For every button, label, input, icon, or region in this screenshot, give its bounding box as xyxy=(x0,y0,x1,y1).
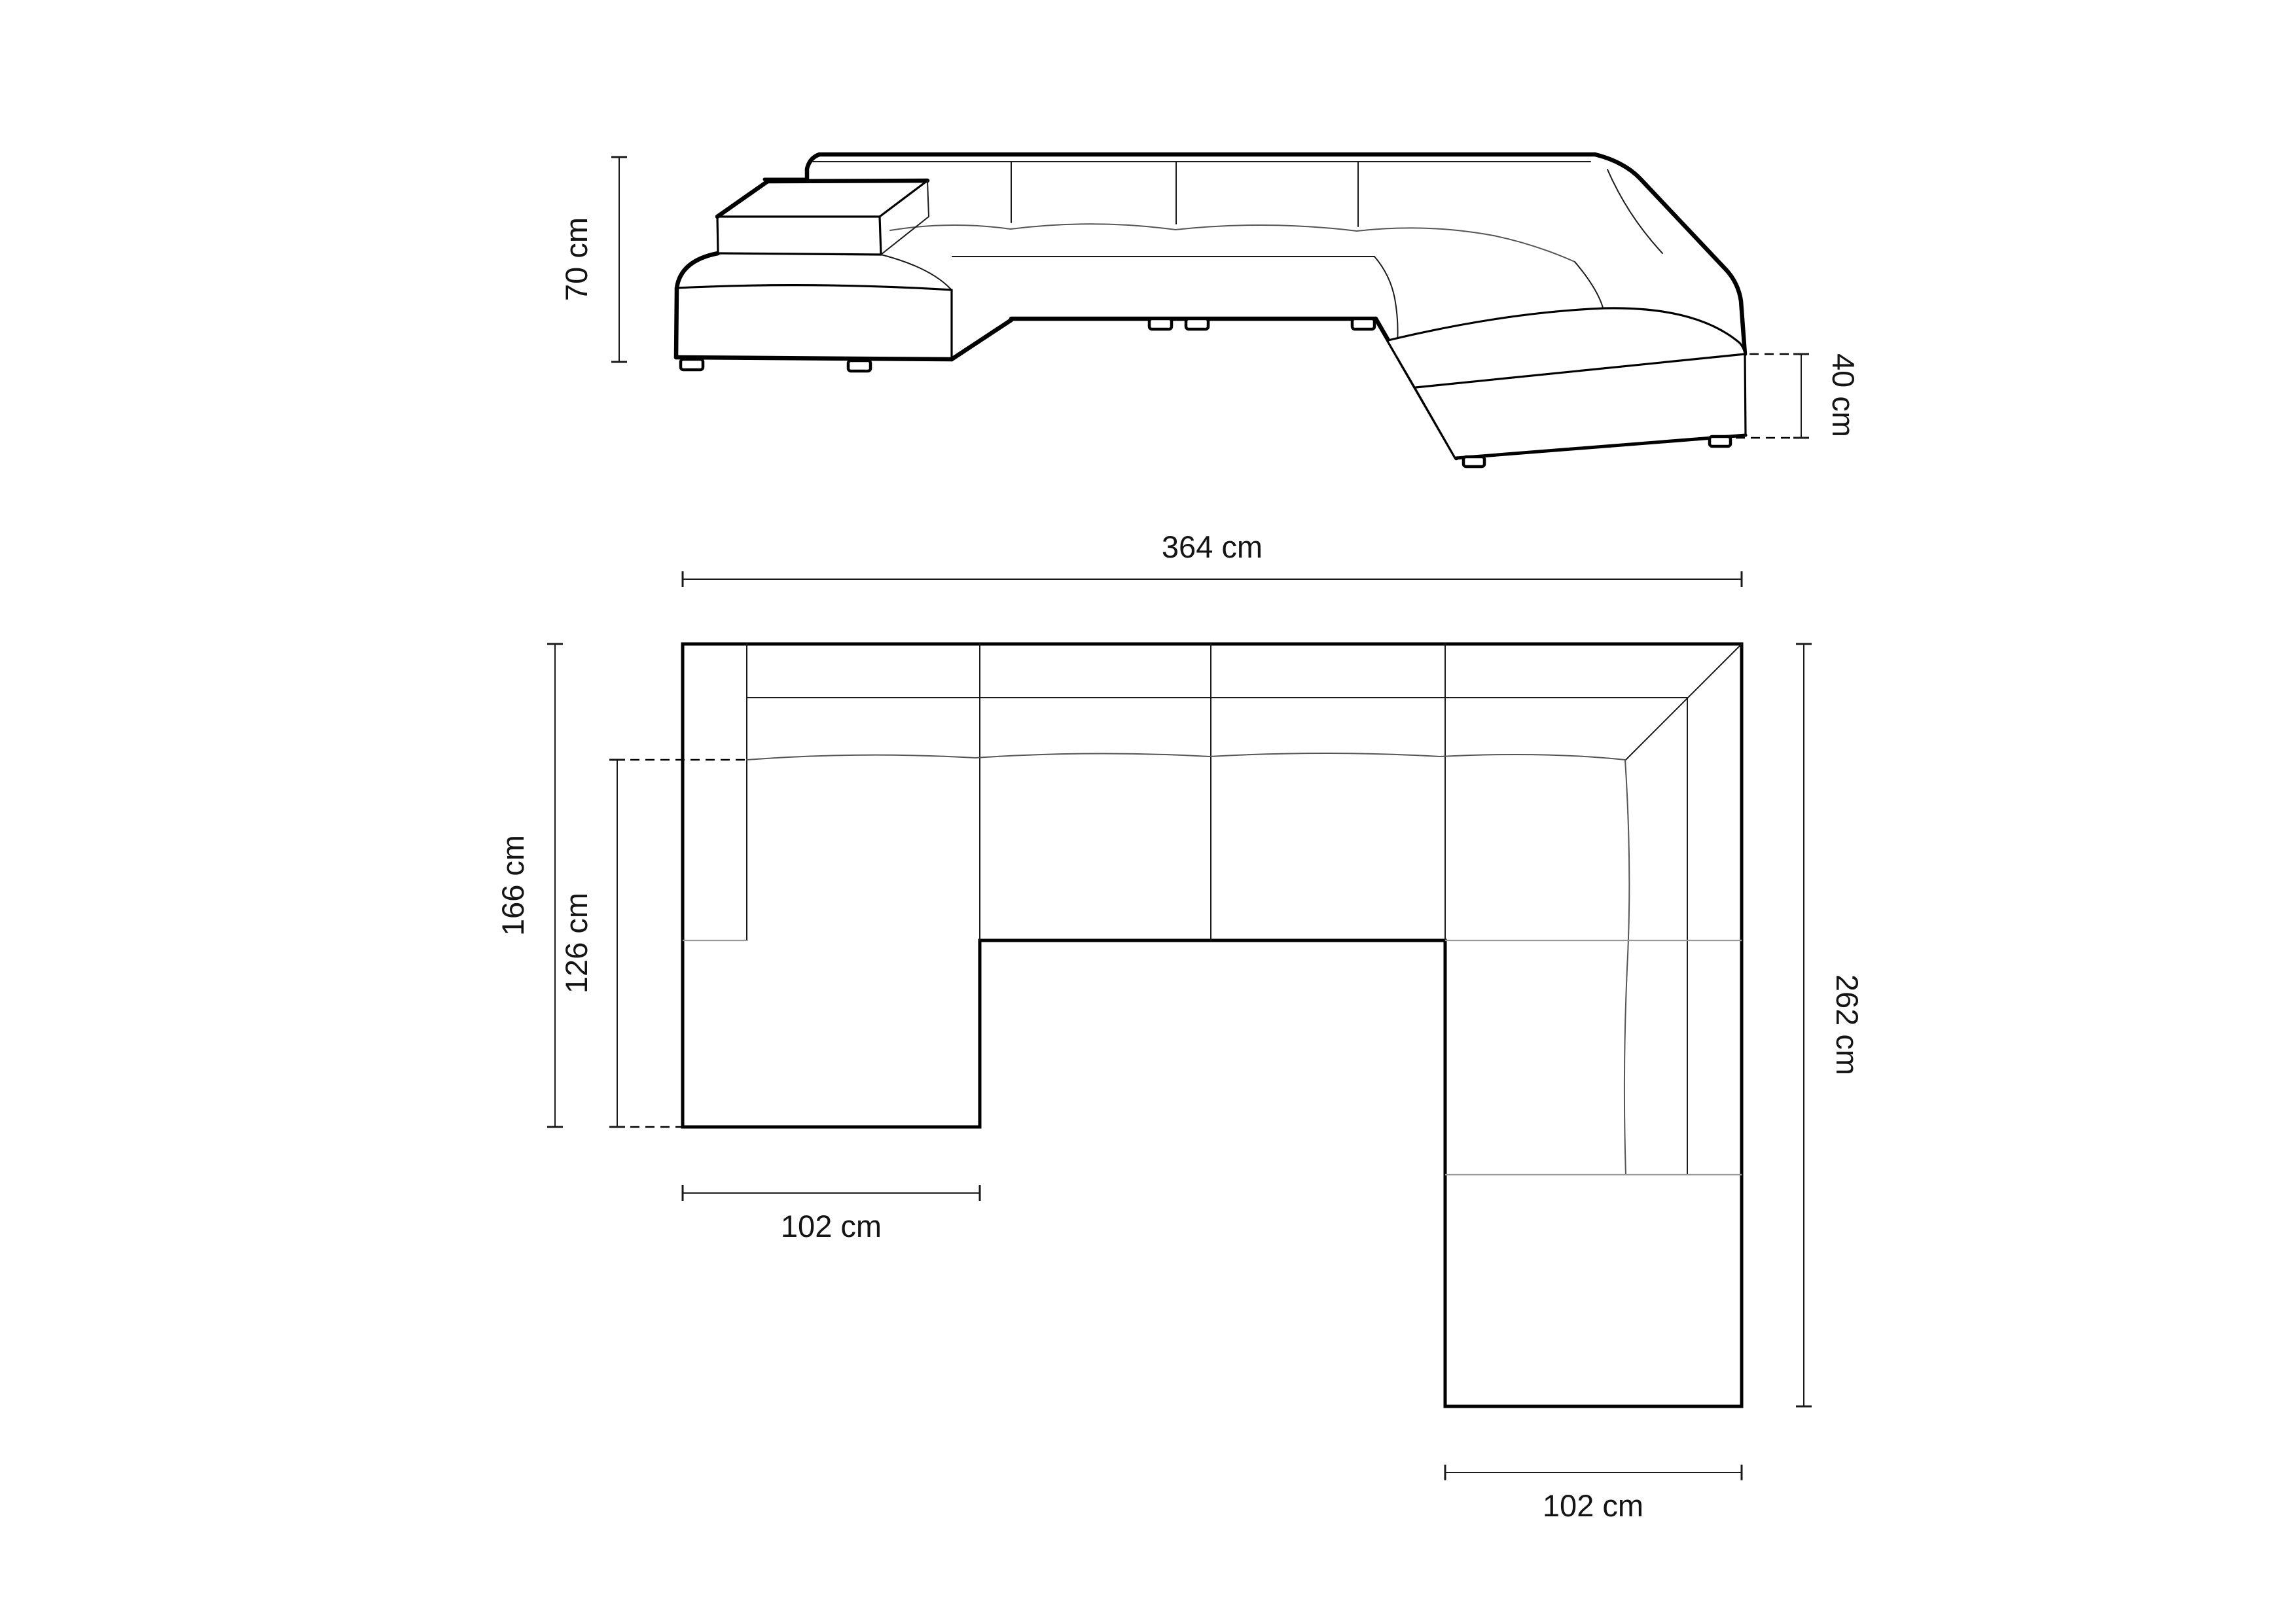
dim-left-chaise-inner: 126 cm xyxy=(559,760,625,1127)
sofa-right-corner-and-ottoman xyxy=(1374,154,1746,467)
dim-label-left-chaise-inner: 126 cm xyxy=(559,893,594,993)
ottoman-foot-left xyxy=(1463,457,1484,467)
dim-left-chaise-width: 102 cm xyxy=(683,1185,980,1243)
ottoman-foot-right xyxy=(1710,437,1731,446)
dim-label-plan-width: 364 cm xyxy=(1162,529,1263,564)
dim-label-left-chaise-width: 102 cm xyxy=(781,1209,882,1243)
dim-ottoman-height: 40 cm xyxy=(1736,353,1861,438)
dim-right-depth: 262 cm xyxy=(1796,644,1865,1406)
plan-outline xyxy=(683,644,1742,1406)
dim-label-right-depth: 262 cm xyxy=(1830,974,1865,1075)
dim-label-front-height: 70 cm xyxy=(559,217,594,301)
dim-label-left-depth: 166 cm xyxy=(495,835,530,936)
sofa-left-chaise xyxy=(676,253,1011,371)
sofa-dimension-diagram: 70 cm 40 cm xyxy=(0,0,2296,1623)
dim-front-height: 70 cm xyxy=(559,157,627,362)
dim-label-ottoman-height: 40 cm xyxy=(1826,353,1861,437)
chaise-foot-right xyxy=(848,361,870,371)
dim-left-depth: 166 cm xyxy=(495,644,563,1127)
front-elevation-view: 70 cm 40 cm xyxy=(559,154,1861,467)
plan-view: 364 cm 166 cm 126 cm 102 cm xyxy=(495,529,1865,1523)
dim-plan-width: 364 cm xyxy=(683,529,1742,587)
sofa-left-armrest xyxy=(717,181,929,255)
chaise-foot-left xyxy=(681,359,703,370)
diagram-svg: 70 cm 40 cm xyxy=(0,0,2296,1623)
dim-right-chaise-width: 102 cm xyxy=(1445,1465,1742,1523)
dim-label-right-chaise-width: 102 cm xyxy=(1543,1488,1643,1523)
